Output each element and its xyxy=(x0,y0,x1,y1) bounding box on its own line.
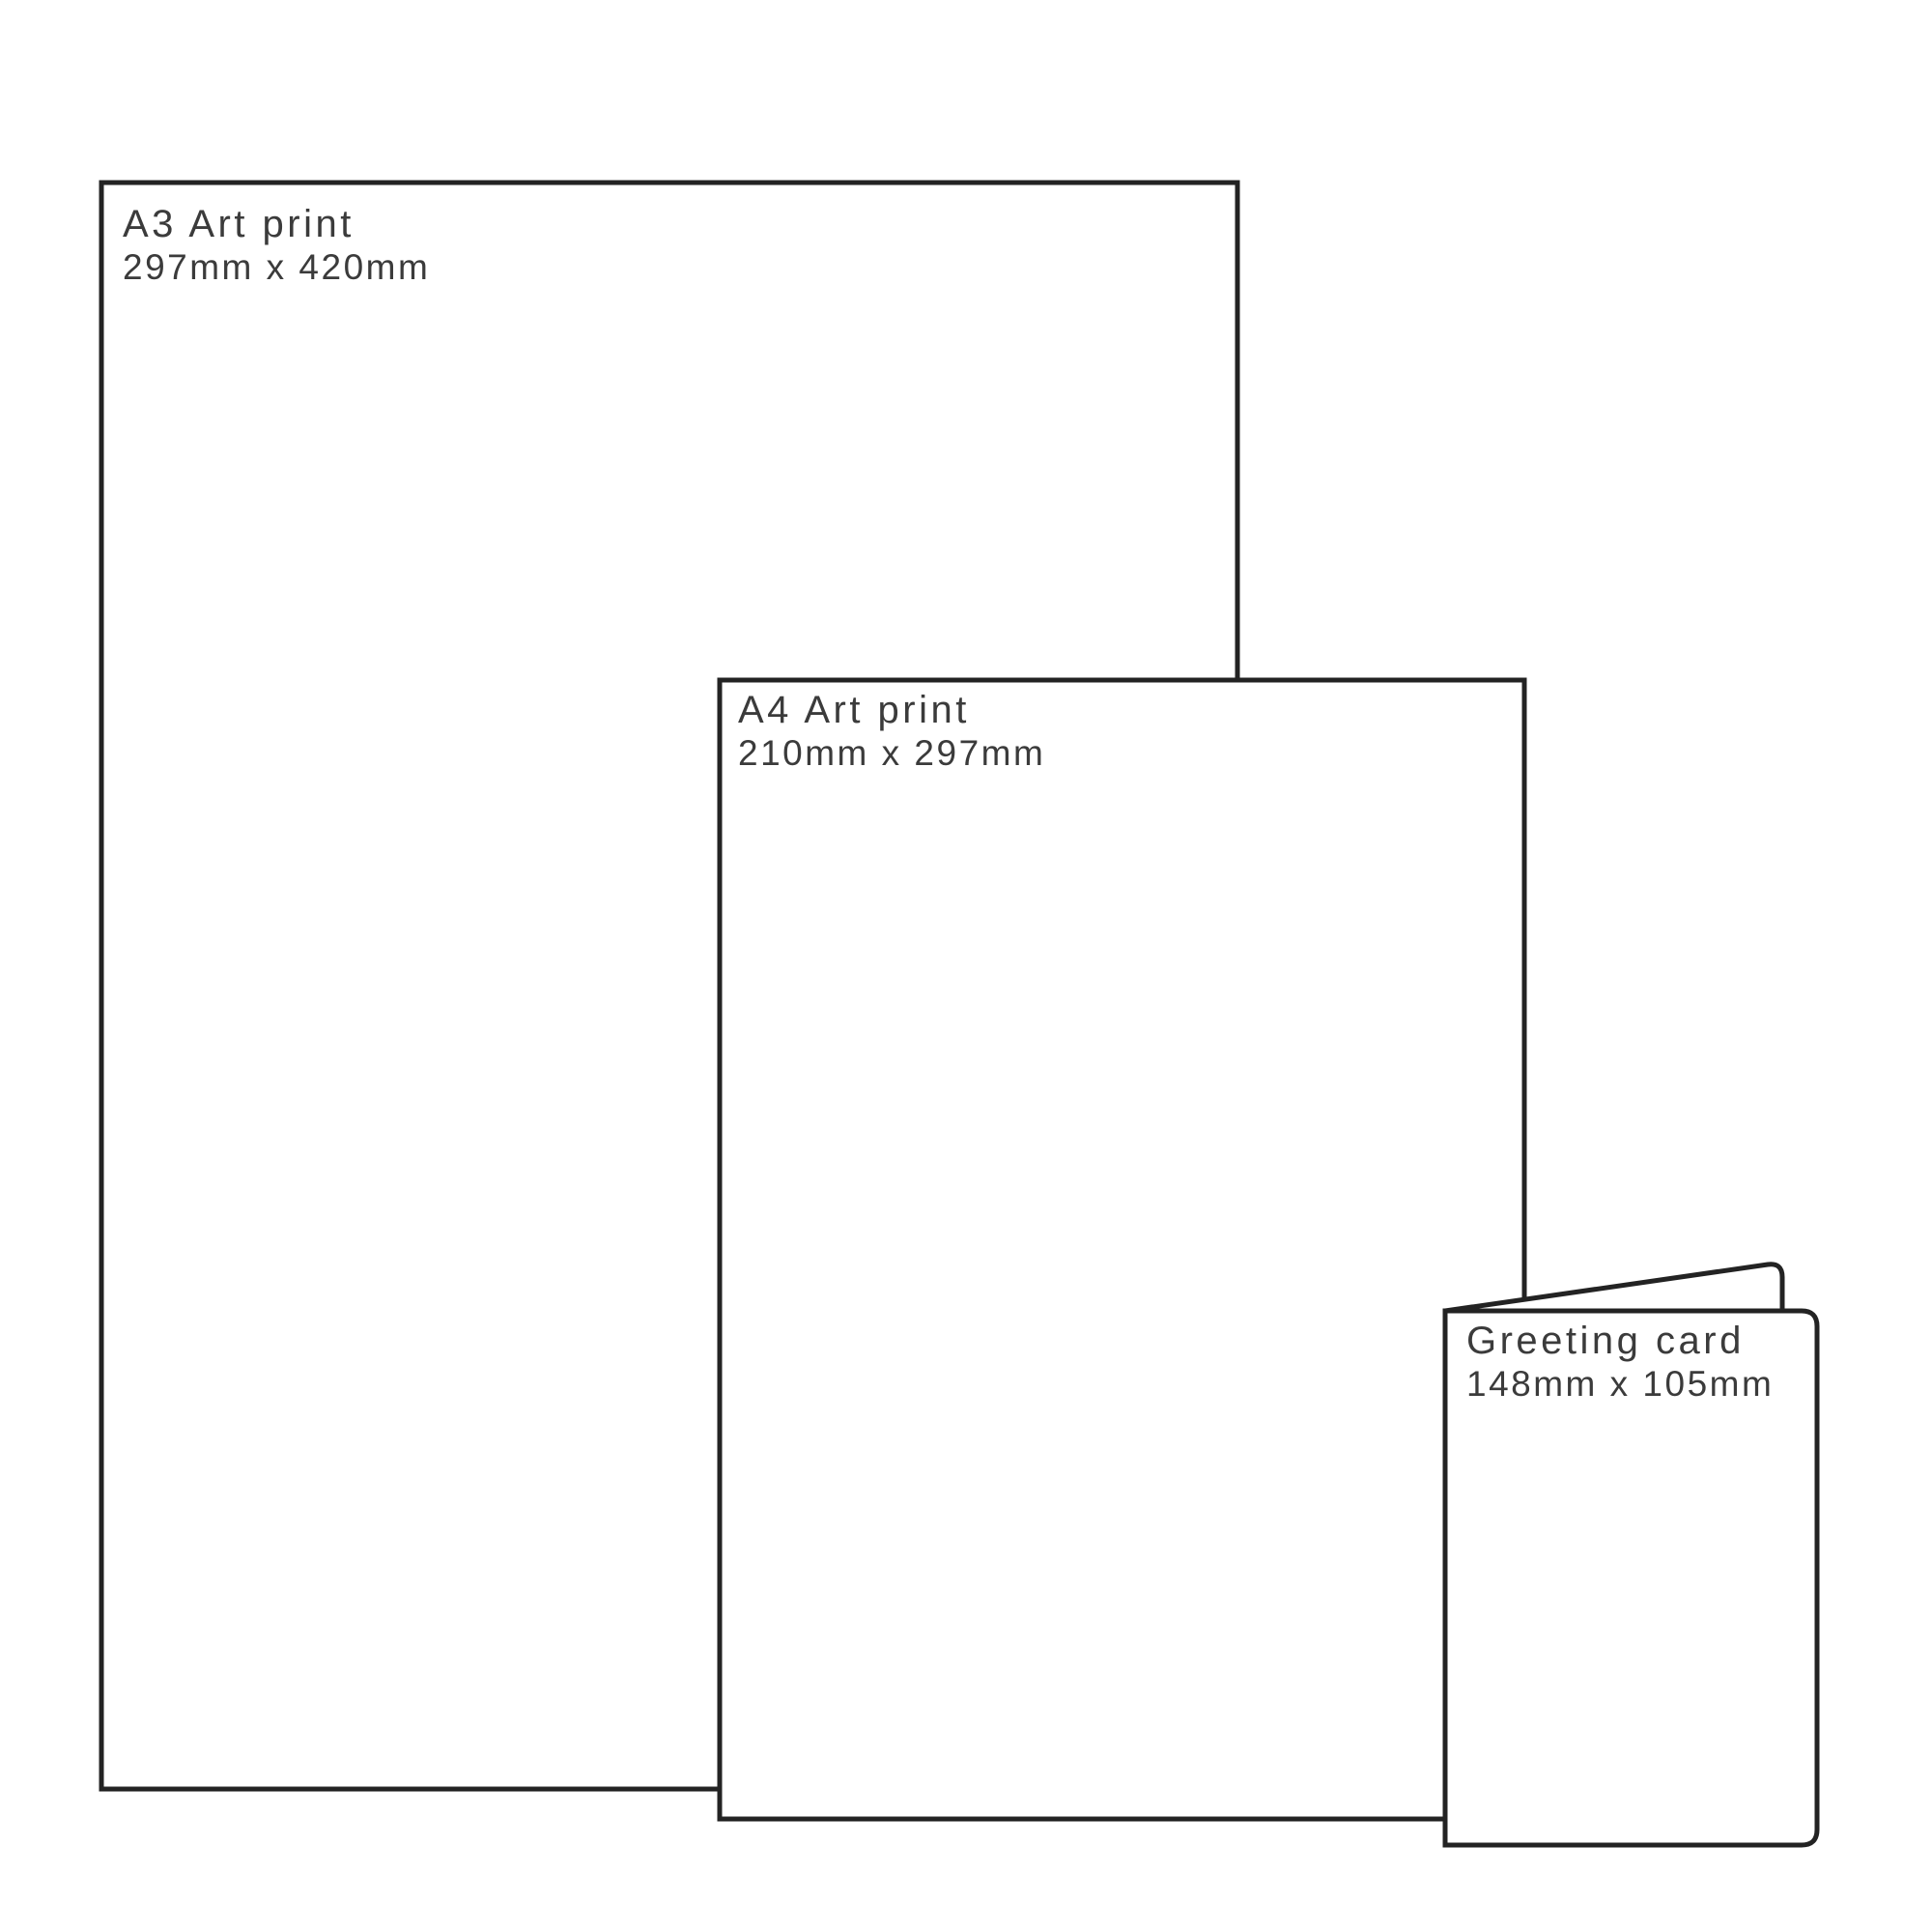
a4-print-outline xyxy=(720,680,1524,1819)
size-comparison-shapes xyxy=(0,0,1932,1932)
greeting-card-front-outline xyxy=(1445,1311,1817,1845)
size-comparison-diagram: A3 Art print 297mm x 420mm A4 Art print … xyxy=(0,0,1932,1932)
